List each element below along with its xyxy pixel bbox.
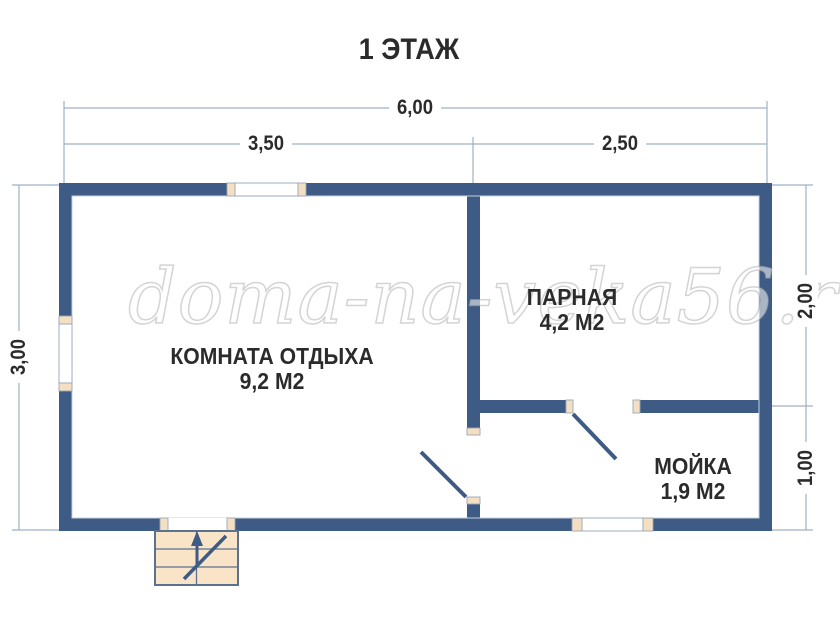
door-jamb-vertical-stub-top — [467, 497, 480, 504]
entrance-jamb-left — [160, 518, 168, 531]
entrance-jamb-right — [227, 518, 235, 531]
watermark: doma-na-veka56.ru — [128, 252, 840, 341]
room-area: 1,9 М2 — [654, 479, 731, 504]
room-label-rest-room: КОМНАТА ОТДЫХА 9,2 М2 — [170, 344, 373, 394]
dim-label-right-width: 2,50 — [594, 132, 646, 156]
room-area: 4,2 М2 — [527, 310, 617, 335]
window-left-jamb-bottom — [59, 383, 72, 391]
window-bottom-jamb-left — [572, 518, 582, 531]
window-top — [235, 183, 298, 196]
window-top-jamb-right — [298, 183, 306, 196]
dim-label-right-top-height: 2,00 — [794, 275, 818, 327]
floor-plan-page: doma-na-veka56.ru 1 ЭТАЖ 6,00 3,50 2,50 … — [0, 0, 840, 630]
window-left — [59, 324, 72, 383]
exterior-wall-top — [59, 183, 772, 196]
exterior-wall-right — [759, 196, 772, 518]
dim-label-right-bottom-height: 1,00 — [794, 442, 818, 494]
dim-label-left-width: 3,50 — [240, 132, 292, 156]
window-top-jamb-left — [227, 183, 235, 196]
entrance-opening — [168, 518, 227, 531]
room-name: МОЙКА — [654, 454, 731, 479]
dim-label-total-width: 6,00 — [389, 96, 441, 120]
door-leaves — [421, 414, 616, 497]
interior-wall-horizontal-left — [480, 400, 573, 413]
window-left-jamb-top — [59, 316, 72, 324]
room-area: 9,2 М2 — [170, 369, 373, 394]
room-label-washing-room: МОЙКА 1,9 М2 — [654, 454, 731, 504]
door-jamb-steam-right — [633, 400, 640, 413]
room-label-steam-room: ПАРНАЯ 4,2 М2 — [527, 285, 617, 335]
page-title: 1 ЭТАЖ — [359, 33, 459, 67]
interior-wall-horizontal-right — [633, 400, 759, 413]
door-leaf-steam-room — [573, 414, 616, 459]
room-name: ПАРНАЯ — [527, 285, 617, 310]
door-leaf-washing-room — [421, 452, 466, 497]
room-name: КОМНАТА ОТДЫХА — [170, 344, 373, 369]
door-jamb-steam-left — [566, 400, 573, 413]
dim-label-left-height: 3,00 — [7, 331, 31, 383]
door-jamb-vertical-wall-end — [467, 428, 480, 435]
window-bottom-jamb-right — [643, 518, 653, 531]
window-bottom — [582, 518, 643, 531]
entrance-stairs — [155, 531, 238, 585]
